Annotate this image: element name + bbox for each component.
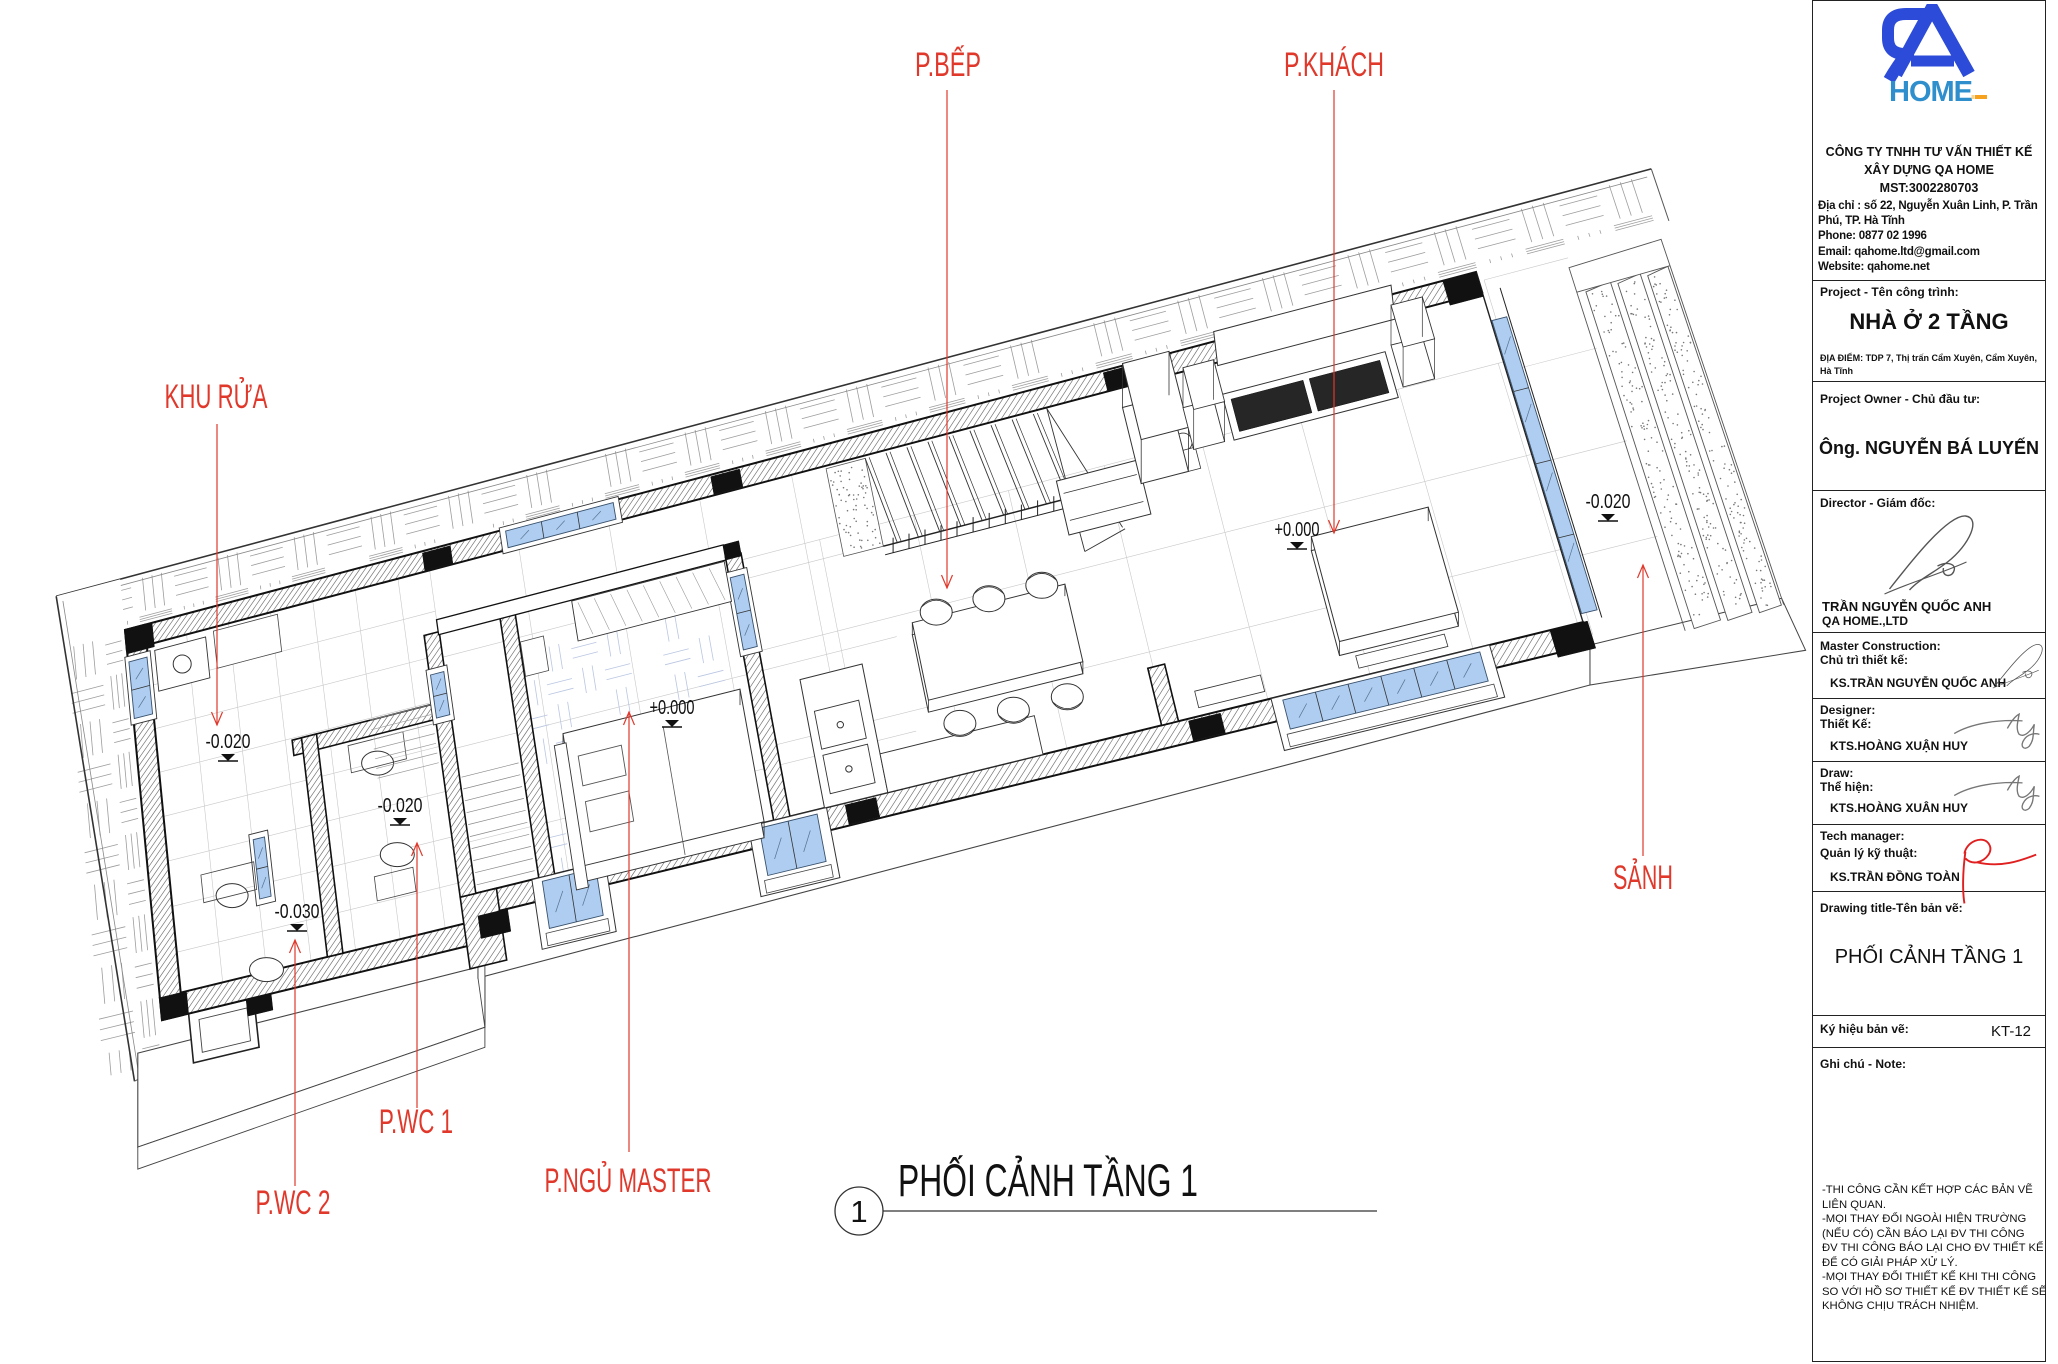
- svg-text:-0.020: -0.020: [1586, 491, 1631, 513]
- svg-text:P.BẾP: P.BẾP: [915, 46, 981, 84]
- svg-text:P.WC 2: P.WC 2: [256, 1184, 331, 1222]
- svg-text:P.NGỦ MASTER: P.NGỦ MASTER: [545, 1162, 712, 1200]
- svg-text:P.WC 1: P.WC 1: [379, 1103, 453, 1141]
- svg-text:-0.020: -0.020: [206, 731, 251, 753]
- svg-text:-0.020: -0.020: [378, 795, 423, 817]
- svg-text:PHỐI CẢNH TẦNG 1: PHỐI CẢNH TẦNG 1: [898, 1155, 1198, 1206]
- svg-text:+0.000: +0.000: [1275, 519, 1320, 541]
- svg-text:P.KHÁCH: P.KHÁCH: [1284, 46, 1384, 84]
- svg-text:HOME: HOME: [1889, 76, 1973, 108]
- svg-text:-0.030: -0.030: [275, 901, 320, 923]
- svg-text:+0.000: +0.000: [650, 697, 695, 719]
- svg-text:SẢNH: SẢNH: [1613, 859, 1673, 897]
- svg-text:KHU RỬA: KHU RỬA: [165, 378, 268, 416]
- svg-text:1: 1: [850, 1194, 867, 1229]
